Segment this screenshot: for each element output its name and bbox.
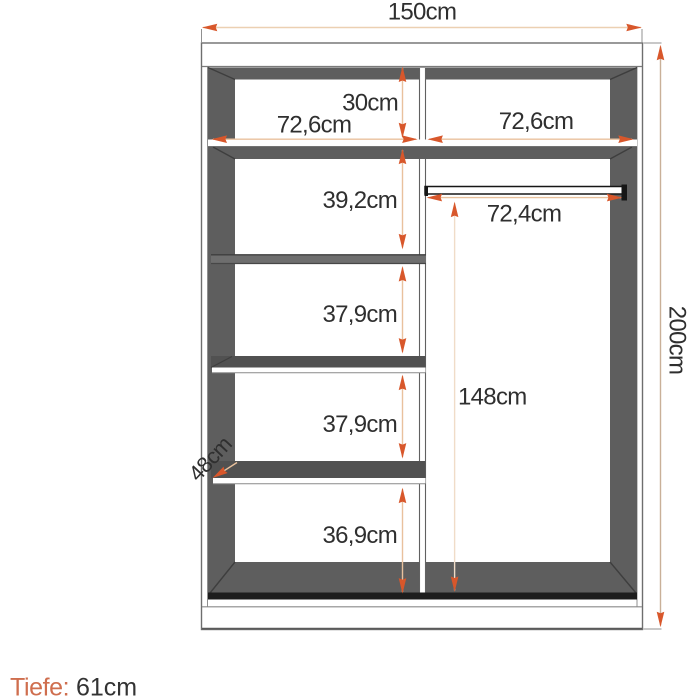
svg-text:72,6cm: 72,6cm bbox=[277, 112, 352, 139]
svg-text:150cm: 150cm bbox=[388, 0, 457, 26]
svg-text:37,9cm: 37,9cm bbox=[322, 411, 397, 438]
svg-text:Tiefe:: Tiefe: bbox=[10, 674, 69, 700]
svg-text:200cm: 200cm bbox=[664, 306, 691, 375]
svg-text:72,6cm: 72,6cm bbox=[499, 108, 574, 135]
svg-text:39,2cm: 39,2cm bbox=[322, 187, 397, 214]
svg-text:61cm: 61cm bbox=[76, 674, 137, 700]
svg-text:148cm: 148cm bbox=[458, 384, 527, 411]
svg-text:72,4cm: 72,4cm bbox=[487, 201, 562, 228]
svg-text:37,9cm: 37,9cm bbox=[322, 301, 397, 328]
svg-text:36,9cm: 36,9cm bbox=[322, 522, 397, 549]
